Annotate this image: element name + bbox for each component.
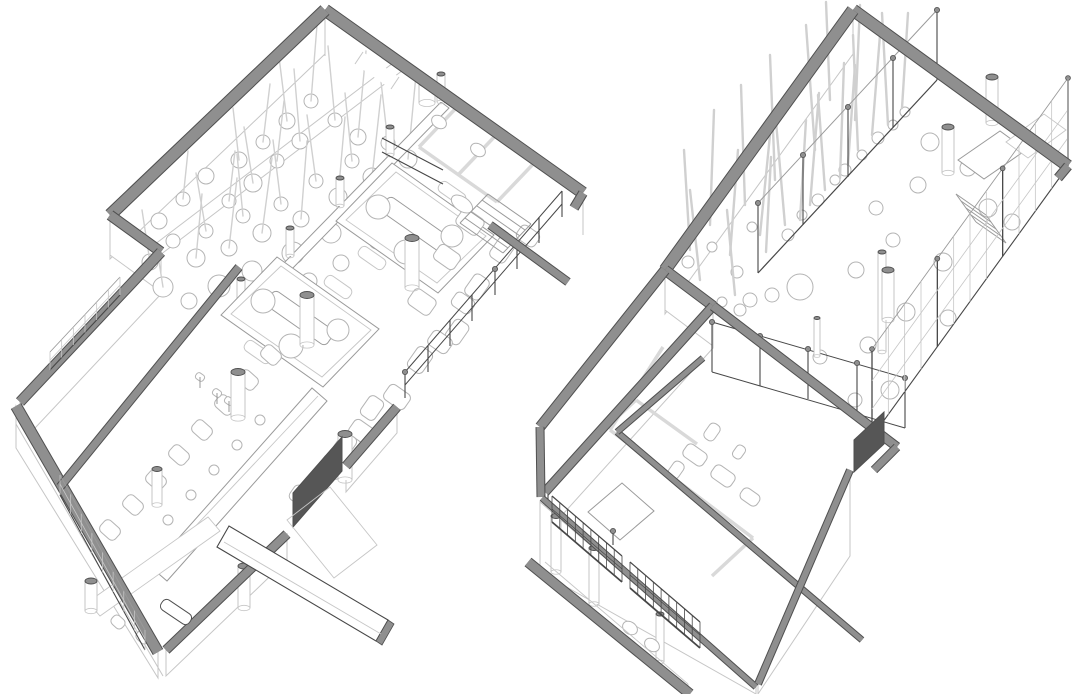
axonometric-drawings-svg: [0, 0, 1080, 694]
right-axonometric-view: [528, 2, 1070, 694]
kitchen-counters: [666, 421, 762, 508]
entry-bench: [159, 598, 194, 627]
stair-steps: [956, 194, 1006, 243]
nw-upper-wall: [110, 10, 325, 215]
left-axonometric-view: [16, 10, 583, 678]
nw-lower-wall-inner: [545, 306, 713, 492]
floor-rug: [588, 483, 654, 540]
ne-wall: [325, 10, 583, 193]
nw-wall: [665, 10, 853, 270]
hanging-tubes: [684, 2, 908, 295]
entry-door-panel: [293, 437, 342, 527]
architectural-diagram-page: [0, 0, 1080, 694]
bar-banquette-chairs: [98, 343, 284, 543]
west-corner-wall: [540, 427, 541, 497]
